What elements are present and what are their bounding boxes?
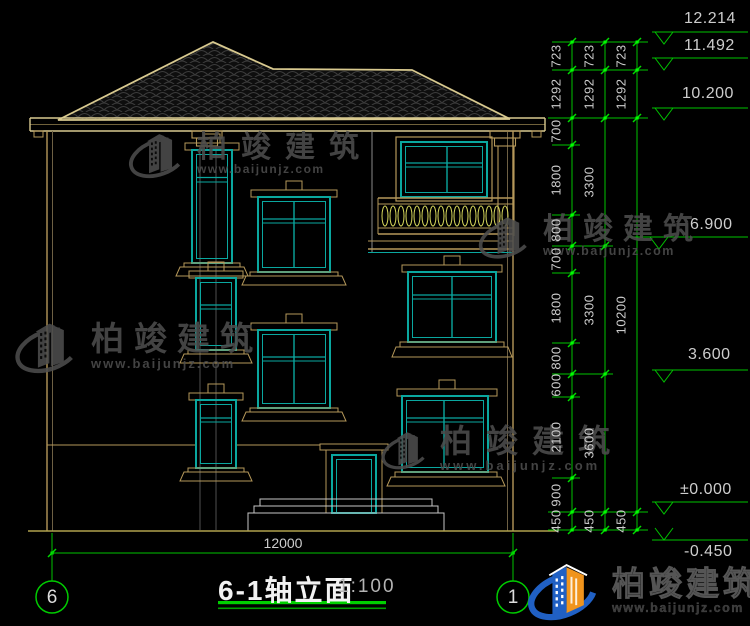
level-10200: 10.200 <box>682 85 734 103</box>
watermark-site: www.baijunjz.com <box>440 459 624 473</box>
balcony-window <box>396 137 492 201</box>
level-12214: 12.214 <box>684 10 736 28</box>
watermark-brand: 柏竣建筑 <box>91 322 263 357</box>
watermark-logo-icon <box>126 122 190 186</box>
dim-col1-1800b: 1800 <box>549 293 564 324</box>
drawing-title: 6-1轴立面 <box>218 569 354 609</box>
dim-bottom-12000: 12000 <box>249 535 317 551</box>
dim-col2-3300b: 3300 <box>582 295 597 326</box>
watermark-site: www.baijunjz.com <box>91 357 263 371</box>
entry-door <box>320 444 388 513</box>
watermark-brand: 柏竣建筑 <box>197 132 373 164</box>
cad-elevation-sheet: 柏竣建筑 www.baijunjz.com 柏竣建筑 www.baijunjz.… <box>0 0 750 626</box>
dim-col2-723: 723 <box>582 44 597 67</box>
dim-col1-1800a: 1800 <box>549 165 564 196</box>
dim-col1-723: 723 <box>549 44 564 67</box>
window-mid-upper <box>242 181 346 285</box>
watermark-brand: 柏竣建筑 <box>543 214 703 246</box>
hip-roof <box>58 42 510 120</box>
window-right-mid <box>392 256 512 357</box>
dim-col3-723: 723 <box>614 44 629 67</box>
dim-col2-1292: 1292 <box>582 79 597 110</box>
dim-col2-3600: 3600 <box>582 428 597 459</box>
dim-col1-700b: 700 <box>549 247 564 270</box>
dim-col1-600: 600 <box>549 373 564 396</box>
dim-col2-3300a: 3300 <box>582 167 597 198</box>
dim-col3-1292: 1292 <box>614 79 629 110</box>
dim-col1-450: 450 <box>549 509 564 532</box>
watermark-right: 柏竣建筑 www.baijunjz.com <box>476 206 703 266</box>
watermark-site: www.baijunjz.com <box>543 245 703 258</box>
dim-col2-450: 450 <box>582 509 597 532</box>
brand-logo: 柏竣建筑 www.baijunjz.com <box>524 558 750 624</box>
watermark-top: 柏竣建筑 www.baijunjz.com <box>126 122 373 186</box>
watermark-left: 柏竣建筑 www.baijunjz.com <box>12 310 263 382</box>
level-6900: 6.900 <box>690 216 733 234</box>
dim-col3-10200: 10200 <box>614 296 629 335</box>
axis-bubble-1: 1 <box>508 587 519 609</box>
dim-col1-800b: 800 <box>549 346 564 369</box>
brand-logo-text: 柏竣建筑 <box>612 567 750 600</box>
entry-steps <box>248 499 444 531</box>
watermark-logo-icon <box>379 422 433 476</box>
dim-col1-800a: 800 <box>549 218 564 241</box>
dim-col1-1292: 1292 <box>549 79 564 110</box>
brand-logo-url: www.baijunjz.com <box>612 602 750 615</box>
drawing-scale: 1:100 <box>338 576 396 598</box>
dim-col1-900: 900 <box>549 483 564 506</box>
level-markers <box>628 32 748 540</box>
dim-col1-700a: 700 <box>549 119 564 142</box>
level-3600: 3.600 <box>688 346 731 364</box>
dim-col3-450: 450 <box>614 509 629 532</box>
level-0000: ±0.000 <box>680 481 732 499</box>
watermark-logo-icon <box>12 310 84 382</box>
axis-bubble-6: 6 <box>47 587 58 609</box>
watermark-site: www.baijunjz.com <box>197 163 373 176</box>
brand-logo-icon <box>524 558 606 624</box>
level-11492: 11.492 <box>684 37 735 55</box>
watermark-logo-icon <box>476 206 536 266</box>
dim-col1-2100: 2100 <box>549 422 564 453</box>
